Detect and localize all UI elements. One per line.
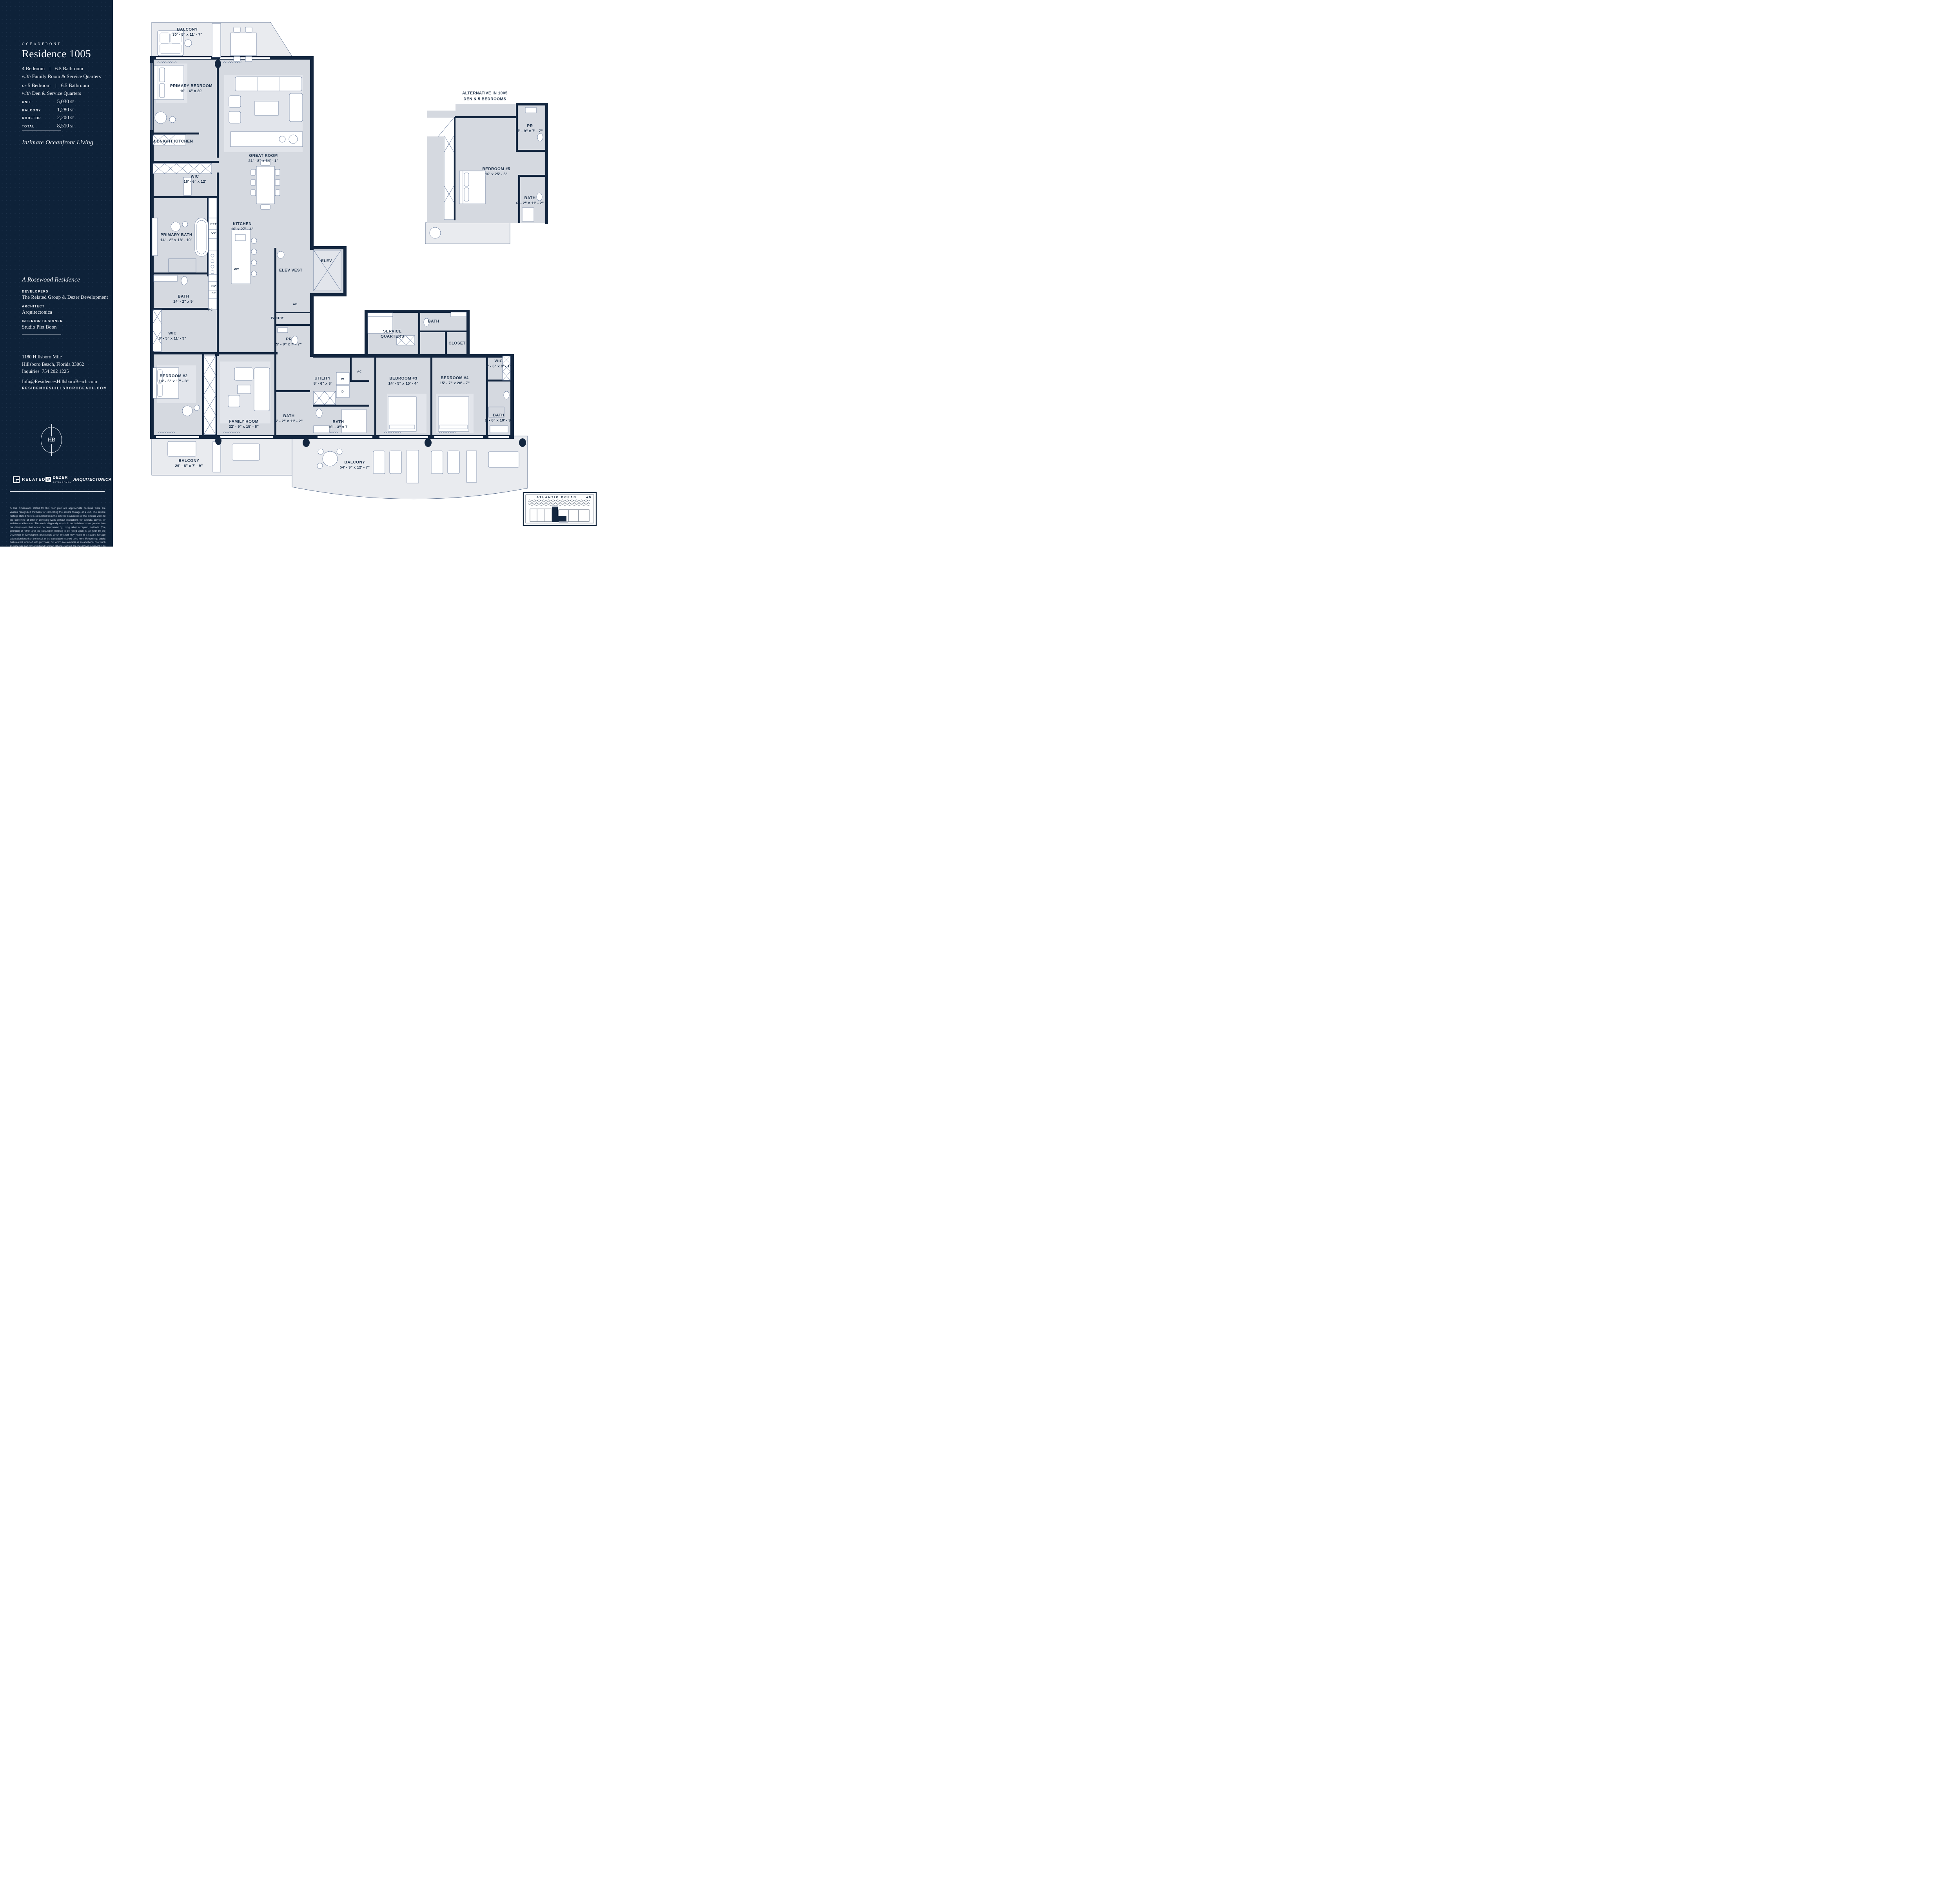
atlantic-ocean-label: ATLANTIC OCEAN xyxy=(537,496,577,499)
floor-plan-graphic xyxy=(0,0,615,547)
alt-title-line1: ALTERNATIVE IN 1005 xyxy=(462,91,508,97)
floorplan-page: OCEANFRONT Residence 1005 4 Bedroom|6.5 … xyxy=(0,0,615,547)
compass-letter: N xyxy=(589,496,592,499)
alt-title-line2: DEN & 5 BEDROOMS xyxy=(462,96,508,102)
monogram-letters: HB xyxy=(47,436,56,444)
north-compass: ◀N xyxy=(586,496,592,499)
compass-arrow-icon: ◀ xyxy=(586,496,588,499)
alternative-plan-title: ALTERNATIVE IN 1005 DEN & 5 BEDROOMS xyxy=(462,91,508,102)
